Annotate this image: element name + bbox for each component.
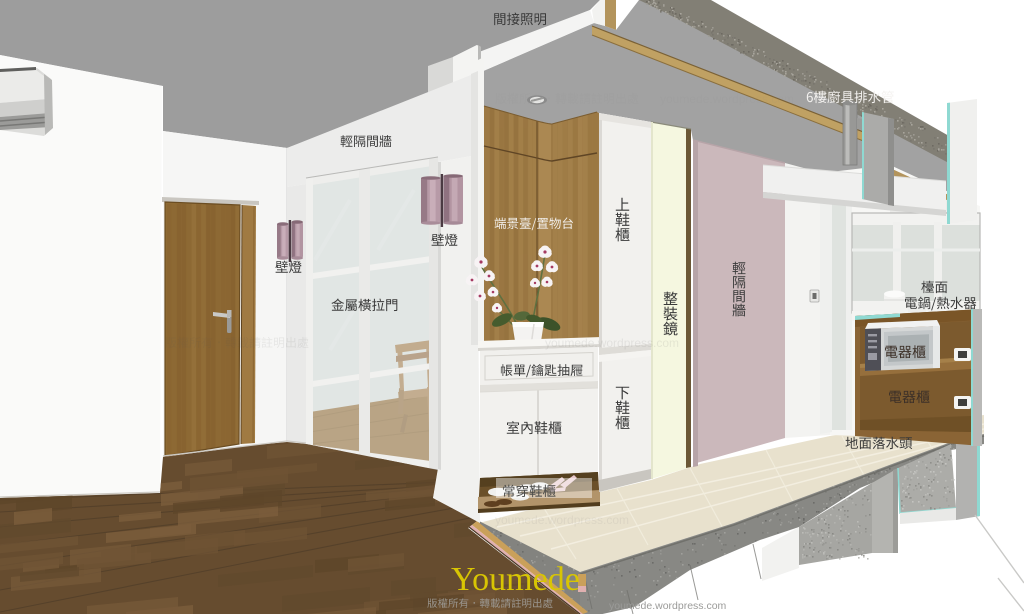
- svg-text:Youmede: Youmede: [451, 561, 580, 598]
- svg-text:youmede.wordpress.com: youmede.wordpress.com: [495, 513, 629, 527]
- svg-text:youmede.wordpress.com: youmede.wordpress.com: [660, 92, 794, 106]
- svg-text:youmede.wordpress.com: youmede.wordpress.com: [609, 600, 727, 612]
- svg-text:youmede.wordpress.com: youmede.wordpress.com: [545, 336, 679, 350]
